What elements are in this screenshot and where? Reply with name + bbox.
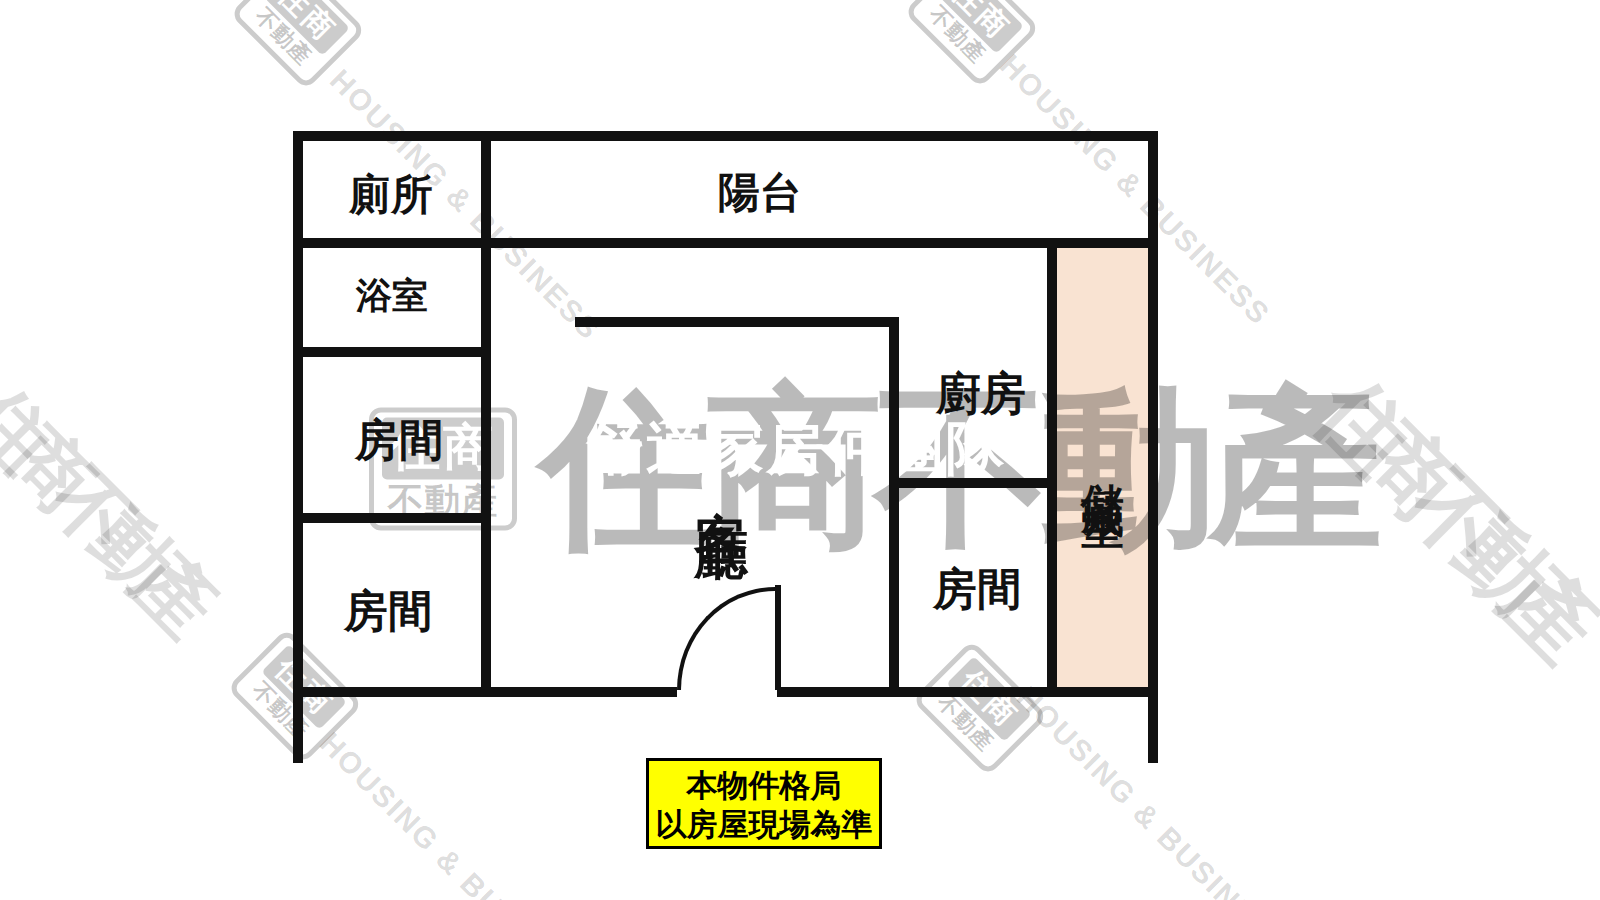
room-label-kitchen: 廚房 bbox=[936, 371, 1026, 416]
wall-outer-left bbox=[293, 131, 303, 763]
room-label-balcony: 陽台 bbox=[718, 172, 802, 214]
notice-line-1: 本物件格局 bbox=[649, 766, 879, 805]
brand-logo-top-center: 住商 不動產 bbox=[904, 0, 1040, 88]
wall-kitchen-divider bbox=[889, 317, 899, 697]
wall-living-top bbox=[575, 317, 898, 327]
wall-storage-left bbox=[1047, 238, 1057, 697]
wall-outer-right bbox=[1148, 131, 1158, 763]
room-label-bathroom: 浴室 bbox=[356, 278, 428, 314]
wall-bathroom-bottom bbox=[293, 347, 491, 357]
door-panel bbox=[775, 585, 781, 690]
watermark-brand-right: 住商不動產 bbox=[1290, 353, 1600, 670]
wall-left-rooms-divider bbox=[293, 513, 491, 523]
brand-logo-top-left: 住商 不動產 bbox=[230, 0, 366, 90]
wall-left-column-divider bbox=[481, 131, 491, 697]
notice-line-2: 以房屋現場為準 bbox=[649, 805, 879, 844]
door-swing-arc bbox=[677, 587, 775, 690]
room-label-toilet: 廁所 bbox=[349, 174, 433, 216]
notice-label: 本物件格局 以房屋現場為準 bbox=[646, 758, 882, 849]
room-label-room-left-lower: 房間 bbox=[344, 589, 432, 633]
wall-bottom-left-segment bbox=[293, 687, 677, 697]
watermark-brand-left: 住商不動產 bbox=[0, 365, 225, 644]
watermark-team-name: 舒適家房仲團隊 bbox=[586, 410, 1006, 488]
wall-outer-top bbox=[293, 131, 1158, 141]
room-label-storage: 儲藏室 bbox=[1082, 449, 1125, 479]
floor-plan-image: HOUSING & BUSINESS HOUSING & BUSINESS HO… bbox=[0, 0, 1600, 900]
watermark-housing-bottom-left: HOUSING & BUSINESS bbox=[313, 726, 597, 900]
wall-balcony-bottom bbox=[293, 238, 1158, 248]
room-label-room-right: 房間 bbox=[933, 567, 1021, 611]
room-label-room-left-upper: 房間 bbox=[355, 418, 443, 462]
room-label-living: 客廳 bbox=[695, 466, 749, 494]
wall-kitchen-bottom bbox=[889, 478, 1057, 488]
wall-bottom-right-segment bbox=[777, 687, 1158, 697]
brand-logo-bottom-right: 住商 不動產 bbox=[912, 640, 1048, 776]
